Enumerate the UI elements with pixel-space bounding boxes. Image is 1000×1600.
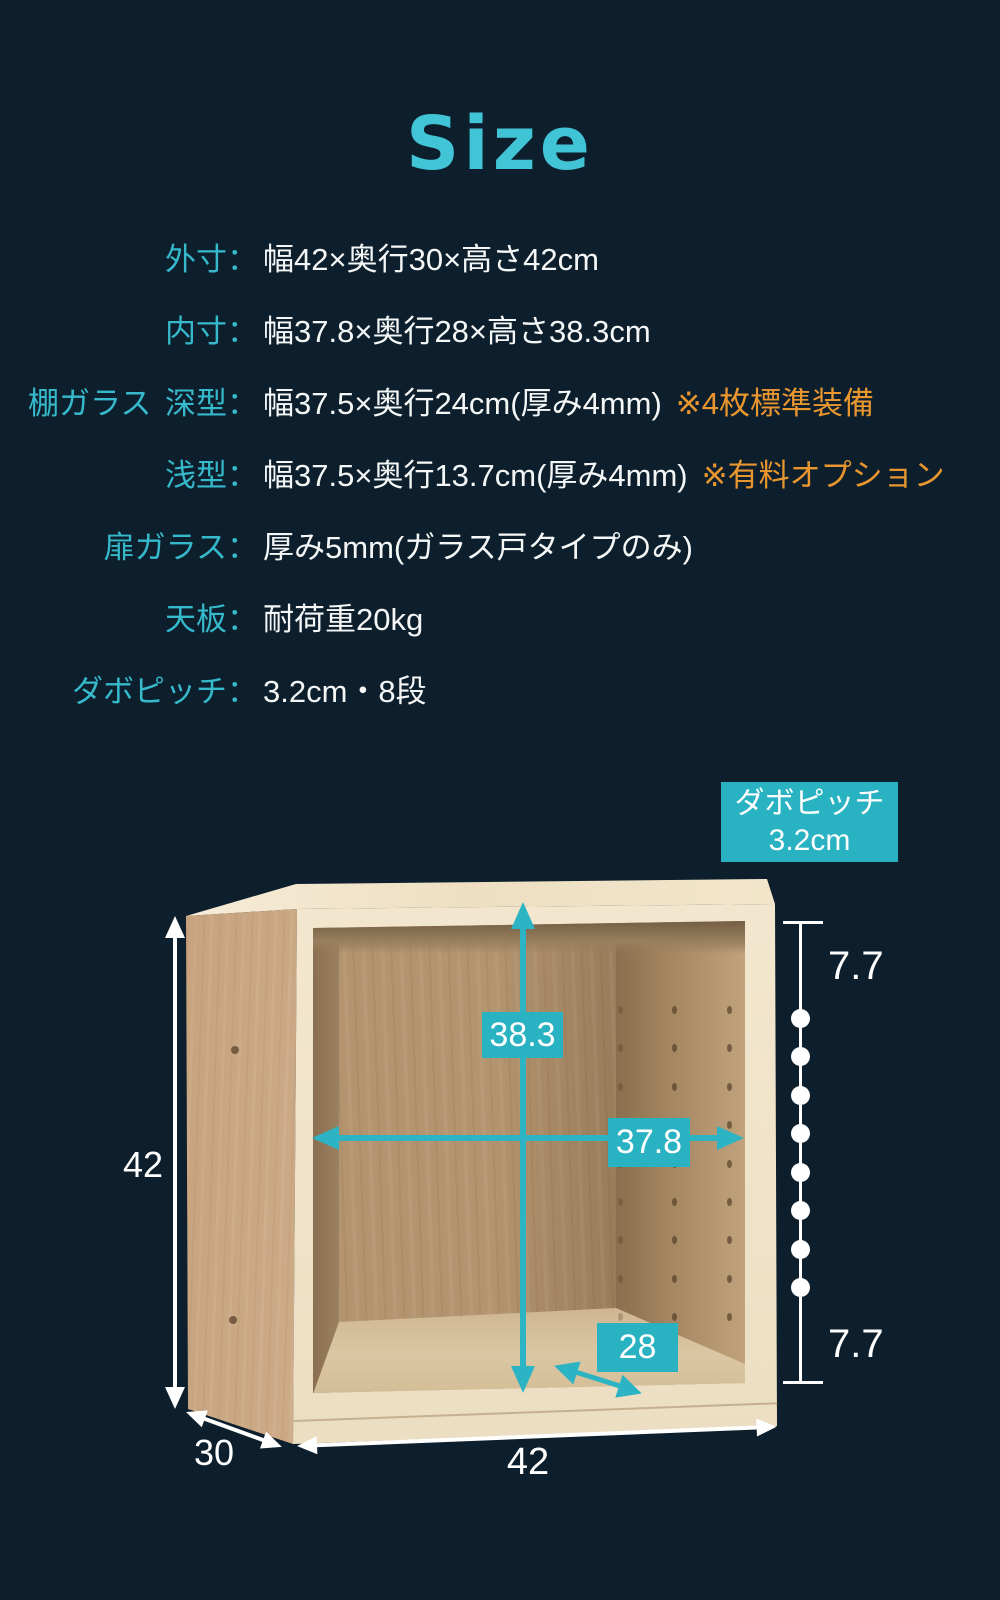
spec-row: 棚ガラス 深型： 幅37.5×奥行24cm(厚み4mm) ※4枚標準装備 xyxy=(28,364,978,436)
side-screw-hole xyxy=(231,1046,239,1054)
pitch-bottom-tick xyxy=(783,1381,823,1384)
shelf-position-dot xyxy=(791,1278,810,1297)
pitch-top-tick xyxy=(783,921,823,924)
page-title: Size xyxy=(0,104,1000,184)
pin-hole xyxy=(727,1160,732,1168)
callout-line1: ダボピッチ xyxy=(721,785,898,822)
interior-left-panel xyxy=(313,918,339,1396)
pin-hole xyxy=(618,1275,623,1283)
pin-hole xyxy=(672,1198,677,1206)
shelf-pin-dots xyxy=(791,1009,810,1309)
spec-value: 幅37.5×奥行24cm(厚み4mm) xyxy=(263,378,662,423)
spec-list: 外寸： 幅42×奥行30×高さ42cm 内寸： 幅37.8×奥行28×高さ38.… xyxy=(28,220,978,724)
pitch-top-label: 7.7 xyxy=(828,944,884,989)
shelf-position-dot xyxy=(791,1086,810,1105)
spec-row: 内寸： 幅37.8×奥行28×高さ38.3cm xyxy=(28,292,978,364)
outer-depth-label: 30 xyxy=(186,1432,242,1474)
spec-value: 幅37.8×奥行28×高さ38.3cm xyxy=(263,306,651,351)
pin-hole xyxy=(618,1198,623,1206)
outer-width-label: 42 xyxy=(498,1441,558,1484)
spec-label: 深型： xyxy=(165,378,258,423)
inner-width-label: 37.8 xyxy=(608,1118,690,1167)
pin-hole xyxy=(618,1083,623,1091)
spec-note: ※有料オプション xyxy=(702,450,945,495)
pin-hole xyxy=(727,1083,732,1091)
dabo-pitch-callout: ダボピッチ 3.2cm xyxy=(721,782,898,862)
spec-label: 外寸： xyxy=(165,234,258,279)
shelf-position-dot xyxy=(791,1201,810,1220)
spec-label: 扉ガラス： xyxy=(104,522,258,567)
pin-hole xyxy=(727,1198,732,1206)
spec-prefix: 棚ガラス xyxy=(28,378,151,423)
product-size-page: Size 外寸： 幅42×奥行30×高さ42cm 内寸： 幅37.8×奥行28×… xyxy=(0,0,1000,1600)
spec-row: 扉ガラス： 厚み5mm(ガラス戸タイプのみ) xyxy=(28,508,978,580)
cabinet-illustration xyxy=(180,875,780,1450)
spec-label: 浅型： xyxy=(165,450,258,495)
spec-label: 天板： xyxy=(165,594,258,639)
pin-hole xyxy=(672,1006,677,1014)
spec-label: 内寸： xyxy=(165,306,258,351)
spec-row: 浅型： 幅37.5×奥行13.7cm(厚み4mm) ※有料オプション xyxy=(28,436,978,508)
spec-row: 外寸： 幅42×奥行30×高さ42cm xyxy=(28,220,978,292)
inner-height-label: 38.3 xyxy=(482,1012,563,1058)
spec-note: ※4枚標準装備 xyxy=(676,378,874,423)
pin-hole xyxy=(727,1275,732,1283)
spec-label: ダボピッチ： xyxy=(72,666,258,711)
outer-height-label: 42 xyxy=(103,1144,163,1186)
spec-value: 厚み5mm(ガラス戸タイプのみ) xyxy=(263,522,693,567)
side-screw-hole xyxy=(229,1316,237,1324)
pin-hole xyxy=(672,1275,677,1283)
pin-hole xyxy=(672,1083,677,1091)
spec-row: 天板： 耐荷重20kg xyxy=(28,580,978,652)
pitch-bottom-label: 7.7 xyxy=(828,1322,884,1367)
pin-hole xyxy=(618,1006,623,1014)
shelf-position-dot xyxy=(791,1047,810,1066)
callout-line2: 3.2cm xyxy=(721,822,898,859)
spec-value: 3.2cm・8段 xyxy=(263,666,427,711)
inner-depth-label: 28 xyxy=(597,1323,678,1372)
shelf-position-dot xyxy=(791,1009,810,1028)
shelf-position-dot xyxy=(791,1240,810,1259)
spec-row: ダボピッチ： 3.2cm・8段 xyxy=(28,652,978,724)
spec-value: 耐荷重20kg xyxy=(263,594,423,639)
pin-hole xyxy=(727,1006,732,1014)
shelf-position-dot xyxy=(791,1124,810,1143)
spec-value: 幅37.5×奥行13.7cm(厚み4mm) xyxy=(263,450,688,495)
spec-value: 幅42×奥行30×高さ42cm xyxy=(263,234,599,279)
shelf-position-dot xyxy=(791,1163,810,1182)
